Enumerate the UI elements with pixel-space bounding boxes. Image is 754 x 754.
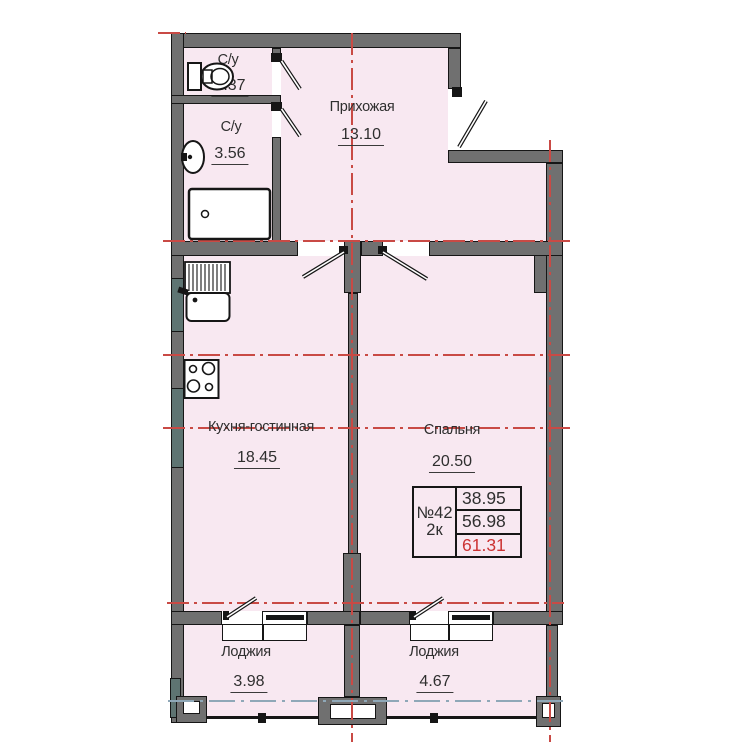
label-loggia-left: Лоджия [221, 644, 271, 660]
area-total-value: 61.31 [457, 533, 520, 556]
label-bedroom: Спальня [424, 422, 480, 438]
area-kitchen: 18.45 [234, 449, 280, 469]
area-bathroom-small: 1.37 [211, 77, 248, 97]
window-left-sash [266, 615, 304, 620]
apartment-number: №42 [416, 505, 452, 522]
loggia-mullion-2 [430, 713, 438, 723]
wall-bath-hall-a [272, 48, 281, 55]
pillar-middle-inner [330, 704, 376, 719]
sill-left-divider [262, 624, 264, 641]
sill-right-divider [448, 624, 450, 641]
wall-bottom-1 [171, 611, 222, 625]
entry-door-leaf [459, 101, 486, 147]
apartment-areas-cell: 38.95 56.98 61.31 [457, 488, 520, 556]
label-bathroom-small: С/у [218, 52, 239, 68]
wall-bath-hall-b [272, 137, 281, 241]
wall-top [171, 33, 461, 48]
loggia-mullion-1 [258, 713, 266, 723]
wall-adjacent-1 [171, 278, 184, 332]
wall-loggia-right [546, 625, 558, 697]
apartment-info-table: №42 2к 38.95 56.98 61.31 [412, 486, 522, 558]
area-bedroom: 20.50 [429, 453, 475, 473]
wall-bottom-4 [493, 611, 563, 625]
axis-horizontal-2 [163, 354, 570, 356]
window-right-sash [452, 615, 490, 620]
area-hallway: 13.10 [338, 126, 384, 146]
wall-mid-center [361, 241, 383, 256]
label-hallway: Прихожая [330, 99, 395, 115]
wall-mid-left [171, 241, 298, 256]
sill-left [222, 624, 307, 641]
axis-tick-top-left [158, 32, 186, 34]
wall-kb-thin [348, 293, 358, 554]
axis-horizontal-1 [163, 240, 570, 242]
label-kitchen: Кухня-гостинная [208, 419, 314, 435]
apartment-id-cell: №42 2к [414, 488, 457, 556]
wall-bottom-3 [360, 611, 410, 625]
area-main-value: 56.98 [457, 509, 520, 532]
label-bathroom-big: С/у [221, 119, 242, 135]
label-loggia-right: Лоджия [409, 644, 459, 660]
wall-entry-stub [448, 48, 461, 89]
area-loggia-right: 4.67 [416, 673, 453, 693]
room-hallway-ext [448, 163, 546, 241]
axis-vertical-2 [549, 140, 551, 742]
area-loggia-left: 3.98 [230, 673, 267, 693]
floor-plan: С/у 1.37 С/у 3.56 Прихожая 13.10 Кухня-г… [0, 0, 754, 754]
axis-blue-loggia [168, 700, 564, 702]
wall-top-right [448, 150, 563, 163]
area-bathroom-big: 3.56 [211, 145, 248, 165]
axis-horizontal-4 [167, 602, 564, 604]
pillar-left-inner [183, 701, 200, 714]
wall-mid-right [429, 241, 563, 256]
sill-right [410, 624, 493, 641]
area-living-value: 38.95 [457, 488, 520, 509]
apartment-type: 2к [426, 522, 442, 539]
